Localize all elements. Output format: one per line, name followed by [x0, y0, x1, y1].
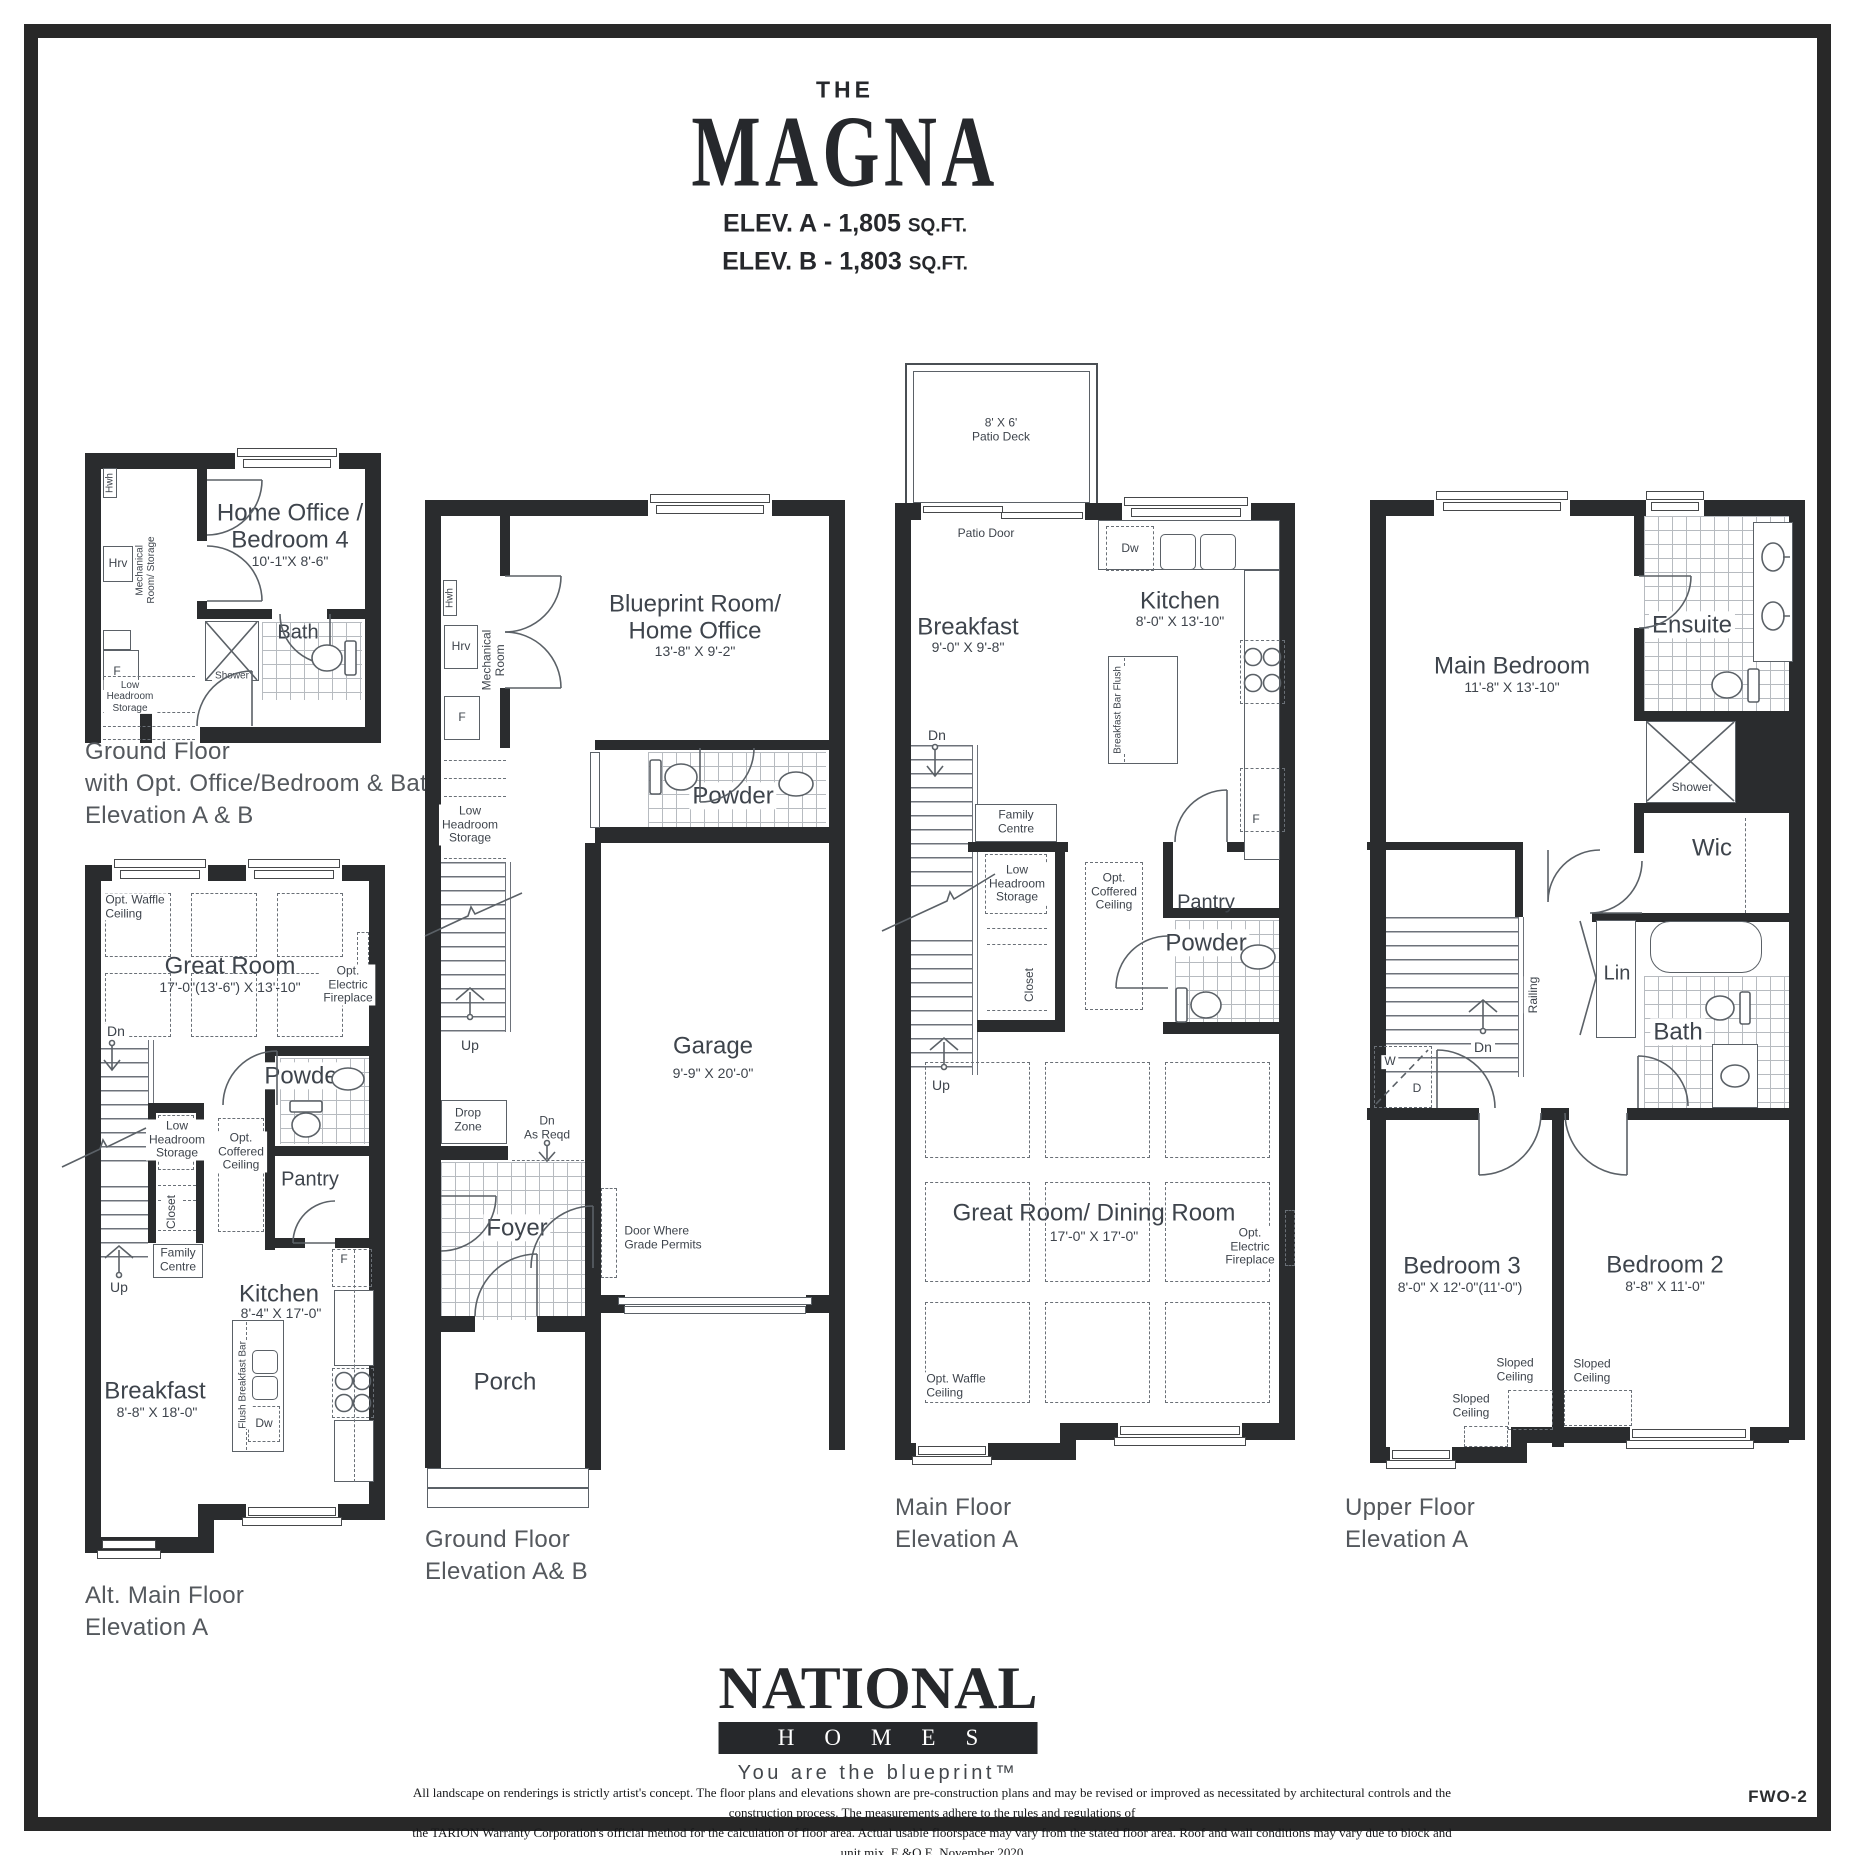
stair-arrow-up [456, 988, 484, 1014]
door-arc [505, 632, 561, 688]
plan-alt-main-fixtures [62, 1041, 371, 1412]
stair-arrow-up [105, 1246, 133, 1272]
arrow-origin [468, 1015, 473, 1020]
door-arc [207, 480, 262, 535]
stove-burner-icon [1264, 649, 1281, 666]
door-arc [197, 671, 252, 726]
stair-arrow-down [104, 1046, 120, 1070]
door-arc [223, 1051, 277, 1105]
door-arc [293, 1201, 335, 1243]
arrow-origin [117, 1273, 122, 1278]
arrow-origin [545, 1141, 550, 1146]
door-arc [1479, 1113, 1541, 1175]
sheet-code: FWO-2 [1748, 1787, 1808, 1807]
plan-main-fixtures [882, 649, 1281, 1070]
toilet-icon [290, 1101, 322, 1112]
bifold-door [1580, 921, 1596, 1035]
sink-icon [1762, 543, 1784, 571]
sink-icon [1762, 602, 1784, 630]
stove-burner-icon [336, 1373, 353, 1390]
shower-x-icon [206, 622, 257, 680]
toilet-icon [1191, 992, 1221, 1018]
plan-ground-fixtures [425, 576, 813, 1316]
door-arc [1548, 850, 1600, 902]
plan-upper-fixtures [1376, 543, 1790, 1175]
stair-arrow-up [930, 1038, 958, 1064]
sink-icon [1721, 1065, 1749, 1087]
disclaimer-line-1: All landscape on renderings is strictly … [412, 1783, 1452, 1823]
toilet-icon [650, 760, 661, 794]
shower-x-icon [1647, 722, 1734, 801]
toilet-icon [292, 1113, 320, 1137]
toilet-icon [665, 764, 697, 790]
stove-burner-icon [1264, 675, 1281, 692]
door-arc [441, 1196, 496, 1251]
sink-icon [1241, 945, 1275, 969]
toilet-icon [1712, 672, 1742, 698]
stair-break-line [882, 874, 995, 931]
stove-burner-icon [1245, 649, 1262, 666]
toilet-icon [312, 645, 342, 671]
door-arc [475, 1254, 537, 1316]
sink-icon [779, 772, 813, 796]
legal-disclaimer: All landscape on renderings is strictly … [412, 1783, 1452, 1855]
logo-tagline: You are the blueprint™ [719, 1762, 1038, 1785]
stair-break-line [62, 1128, 146, 1167]
stair-arrow-up [1469, 1000, 1497, 1028]
disclaimer-line-2: the TARION Warranty Corporation's offici… [412, 1823, 1452, 1855]
plan-ground-opt-fixtures [197, 480, 356, 726]
stair-arrow-down [539, 1146, 555, 1161]
national-homes-logo: NATIONAL HOMES You are the blueprint™ [719, 1658, 1038, 1785]
door-arc [505, 576, 561, 632]
toilet-icon [1740, 992, 1750, 1024]
door-arc [1639, 576, 1691, 628]
arrow-origin [1481, 1029, 1486, 1034]
door-arc [1638, 1056, 1688, 1108]
toilet-icon [1706, 996, 1734, 1020]
stove-burner-icon [354, 1373, 371, 1390]
stove-burner-icon [354, 1395, 371, 1412]
brochure-page: THE MAGNA ELEV. A - 1,805 SQ.FT. ELEV. B… [0, 0, 1855, 1855]
door-arc [207, 546, 262, 601]
door-arc [700, 748, 754, 802]
stair-break-line [425, 893, 522, 936]
logo-wordmark: NATIONAL [719, 1658, 1038, 1718]
door-arc [1437, 1050, 1495, 1108]
arrow-origin [942, 1065, 947, 1070]
stair-arrow-down [927, 750, 943, 776]
stove-burner-icon [1245, 675, 1262, 692]
arrow-origin [110, 1041, 115, 1046]
door-arc [1175, 790, 1227, 842]
toilet-icon [1176, 988, 1187, 1022]
door-arc [1116, 936, 1168, 988]
fixtures-overlay [0, 0, 1855, 1855]
washer-dryer-diagonal [1376, 1050, 1428, 1104]
door-arc [1565, 1113, 1627, 1175]
toilet-icon [1748, 669, 1759, 702]
arrow-origin [933, 745, 938, 750]
sink-icon [332, 1068, 364, 1090]
door-arc [531, 1206, 593, 1268]
logo-homes-bar: HOMES [719, 1722, 1038, 1754]
faucet-icon [1783, 557, 1790, 616]
toilet-icon [345, 641, 356, 675]
door-arc [1590, 861, 1642, 913]
stove-burner-icon [336, 1395, 353, 1412]
